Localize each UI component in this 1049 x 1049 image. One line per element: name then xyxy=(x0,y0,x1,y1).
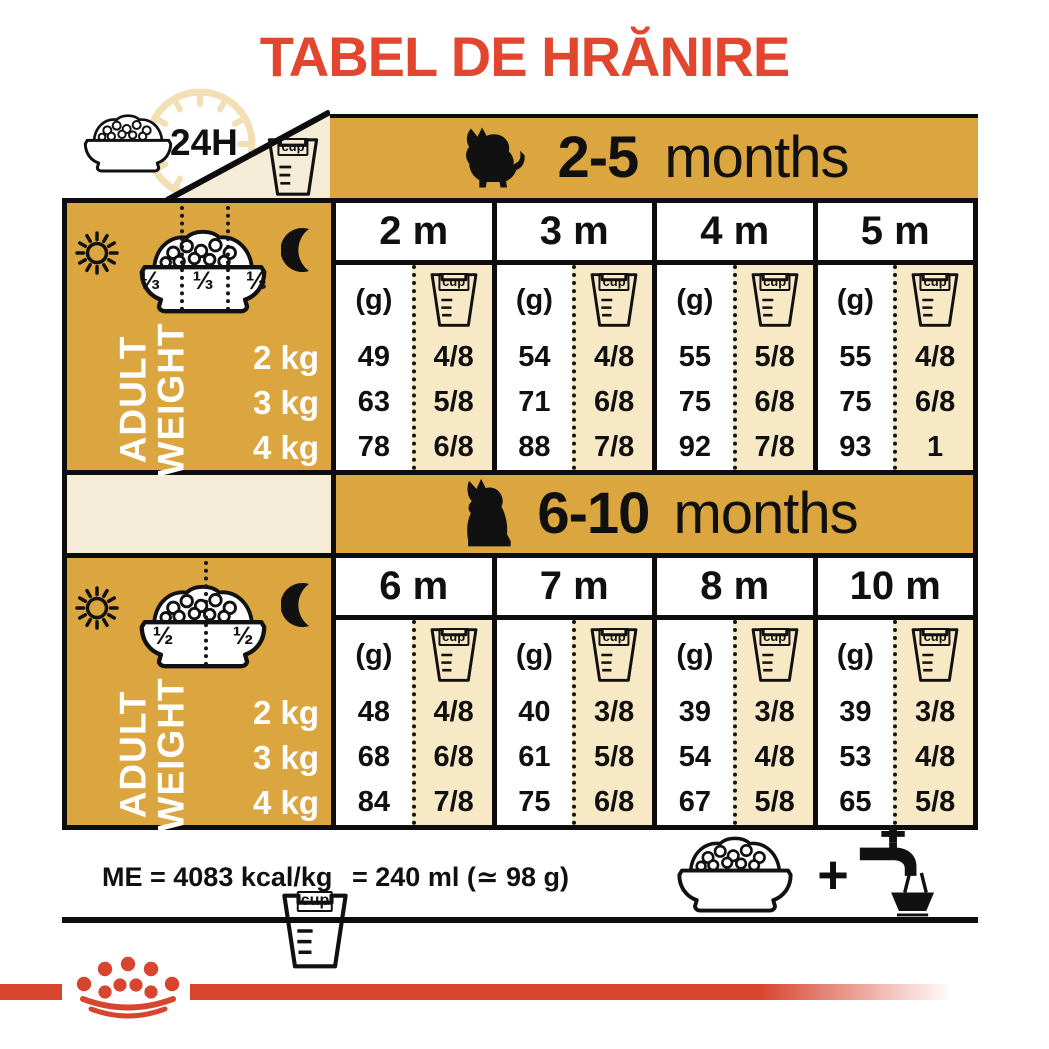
measuring-cup-icon: cup xyxy=(911,273,959,327)
grams-value: 75 xyxy=(657,380,733,425)
column-5m: 5 m (g) 55 75 93 cup 4/8 6/8 1 xyxy=(818,203,974,470)
cup-value: 3/8 xyxy=(576,690,652,735)
cups-subcolumn: cup 4/8 6/8 7/8 xyxy=(412,620,492,825)
fraction-label: ⅓ xyxy=(123,267,176,296)
age-band-content: 6-10 months xyxy=(336,475,973,553)
weight-label: 2 kg xyxy=(253,690,319,735)
cup-label: cup xyxy=(297,891,333,912)
fraction-label: ⅓ xyxy=(230,267,283,296)
measuring-cup-icon: cup xyxy=(430,628,478,682)
grams-value: 63 xyxy=(336,380,412,425)
grams-value: 71 xyxy=(497,380,573,425)
grams-value: 39 xyxy=(657,690,733,735)
grams-value: 61 xyxy=(497,735,573,780)
cup-value: 7/8 xyxy=(576,425,652,470)
red-stripe-right xyxy=(190,984,960,1000)
cup-value: 5/8 xyxy=(897,780,973,825)
weight-label: 3 kg xyxy=(253,380,319,425)
column-10m: 10 m (g) 39 53 65 cup 3/8 4/8 5/8 xyxy=(818,558,974,825)
cup-value: 6/8 xyxy=(416,735,492,780)
weight-label: 4 kg xyxy=(253,780,319,825)
cup-label: cup xyxy=(920,273,951,291)
cup-label: cup xyxy=(599,273,630,291)
measuring-cup-icon: cup xyxy=(266,138,320,196)
fraction-label: ⅓ xyxy=(176,267,229,296)
month-header: 5 m xyxy=(818,203,974,265)
puppy-sitting-icon xyxy=(451,477,513,551)
cups-subcolumn: cup 3/8 4/8 5/8 xyxy=(893,620,973,825)
grams-value: 54 xyxy=(657,735,733,780)
month-header: 6 m xyxy=(336,558,492,620)
measuring-cup-icon: cup xyxy=(751,273,799,327)
cup-value: 6/8 xyxy=(576,380,652,425)
grams-value: 53 xyxy=(818,735,894,780)
moon-icon xyxy=(281,582,315,628)
month-header: 3 m xyxy=(497,203,653,265)
cup-value: 5/8 xyxy=(737,780,813,825)
cup-value: 3/8 xyxy=(737,690,813,735)
cup-value: 6/8 xyxy=(576,780,652,825)
adult-weight-line2: WEIGHT xyxy=(153,322,191,476)
month-header: 8 m xyxy=(657,558,813,620)
moon-icon xyxy=(281,227,315,273)
adult-weight-heading: ADULT WEIGHT xyxy=(83,329,223,469)
grams-unit-label: (g) xyxy=(497,265,573,335)
grams-value: 78 xyxy=(336,425,412,470)
weight-label: 3 kg xyxy=(253,735,319,780)
grams-subcolumn: (g) 48 68 84 xyxy=(336,620,412,825)
grams-unit-label: (g) xyxy=(336,620,412,690)
adult-weight-line1: ADULT xyxy=(115,677,153,831)
metabolizable-energy-label: ME = 4083 kcal/kg xyxy=(102,862,332,893)
fraction-label: ½ xyxy=(203,622,283,651)
cups-subcolumn: cup 5/8 6/8 7/8 xyxy=(733,265,813,470)
adult-weight-line2: WEIGHT xyxy=(153,677,191,831)
month-header: 10 m xyxy=(818,558,974,620)
cup-value: 5/8 xyxy=(576,735,652,780)
plus-sign: + xyxy=(810,844,856,906)
cups-subcolumn: cup 4/8 5/8 6/8 xyxy=(412,265,492,470)
ration-fractions: ½ ½ xyxy=(123,622,283,651)
month-header: 4 m xyxy=(657,203,813,265)
portion-divider-line xyxy=(204,561,208,666)
weight-label: 4 kg xyxy=(253,425,319,470)
grams-value: 55 xyxy=(818,335,894,380)
band-spacer xyxy=(67,475,336,553)
grams-unit-label: (g) xyxy=(336,265,412,335)
portion-divider-line xyxy=(226,206,230,311)
footer-divider-line xyxy=(62,917,978,923)
grams-value: 55 xyxy=(657,335,733,380)
food-bowl-icon xyxy=(655,834,815,914)
age-range: 6-10 xyxy=(537,485,649,543)
weight-rows: 2 kg 3 kg 4 kg xyxy=(253,335,319,470)
cup-label: cup xyxy=(438,273,469,291)
grams-subcolumn: (g) 40 61 75 xyxy=(497,620,573,825)
red-stripe-left xyxy=(0,984,62,1000)
cup-value: 5/8 xyxy=(737,335,813,380)
grams-value: 84 xyxy=(336,780,412,825)
grams-subcolumn: (g) 55 75 93 xyxy=(818,265,894,470)
grams-value: 88 xyxy=(497,425,573,470)
grams-value: 75 xyxy=(818,380,894,425)
grams-value: 67 xyxy=(657,780,733,825)
measuring-cup-icon: cup xyxy=(911,628,959,682)
month-header: 7 m xyxy=(497,558,653,620)
grams-value: 92 xyxy=(657,425,733,470)
age-range: 2-5 xyxy=(557,129,638,187)
page-title: TABEL DE HRĂNIRE xyxy=(0,24,1049,89)
water-faucet-icon xyxy=(854,824,936,918)
portion-divider-line xyxy=(180,206,184,311)
cup-value: 4/8 xyxy=(737,735,813,780)
feeding-table-page: TABEL DE HRĂNIRE 24H cup 2-5 months ⅓ xyxy=(0,0,1049,1049)
grams-value: 68 xyxy=(336,735,412,780)
grams-value: 65 xyxy=(818,780,894,825)
cups-subcolumn: cup 4/8 6/8 1 xyxy=(893,265,973,470)
grams-value: 93 xyxy=(818,425,894,470)
measuring-cup-icon: cup xyxy=(590,273,638,327)
cup-value: 6/8 xyxy=(897,380,973,425)
month-columns: 2 m (g) 49 63 78 cup 4/8 5/8 6/8 xyxy=(336,203,973,470)
grams-unit-label: (g) xyxy=(657,265,733,335)
cup-label: cup xyxy=(759,628,790,646)
grams-subcolumn: (g) 55 75 92 xyxy=(657,265,733,470)
cup-value: 4/8 xyxy=(576,335,652,380)
grams-unit-label: (g) xyxy=(818,620,894,690)
grams-subcolumn: (g) 54 71 88 xyxy=(497,265,573,470)
grams-value: 39 xyxy=(818,690,894,735)
sun-icon xyxy=(73,229,121,277)
cups-subcolumn: cup 3/8 4/8 5/8 xyxy=(733,620,813,825)
cup-value: 4/8 xyxy=(897,735,973,780)
grams-subcolumn: (g) 49 63 78 xyxy=(336,265,412,470)
sidebar-2-5: ⅓ ⅓ ⅓ ADULT WEIGHT 2 kg 3 kg 4 kg xyxy=(67,203,336,470)
cup-value: 4/8 xyxy=(416,690,492,735)
cup-label: cup xyxy=(277,138,308,156)
table-6-10-months: ½ ½ ADULT WEIGHT 2 kg 3 kg 4 kg xyxy=(67,558,973,825)
cup-label: cup xyxy=(599,628,630,646)
cup-value: 1 xyxy=(897,425,973,470)
grams-value: 54 xyxy=(497,335,573,380)
cup-label: cup xyxy=(759,273,790,291)
age-band-2-5-months: 2-5 months xyxy=(330,114,978,198)
cup-label: cup xyxy=(438,628,469,646)
cup-value: 3/8 xyxy=(897,690,973,735)
puppy-standing-icon xyxy=(459,125,531,191)
grams-subcolumn: (g) 39 53 65 xyxy=(818,620,894,825)
column-2m: 2 m (g) 49 63 78 cup 4/8 5/8 6/8 xyxy=(336,203,497,470)
cup-value: 4/8 xyxy=(897,335,973,380)
weight-rows: 2 kg 3 kg 4 kg xyxy=(253,690,319,825)
column-7m: 7 m (g) 40 61 75 cup 3/8 5/8 6/8 xyxy=(497,558,658,825)
weight-label: 2 kg xyxy=(253,335,319,380)
grams-value: 48 xyxy=(336,690,412,735)
measuring-cup-icon: cup xyxy=(282,891,348,971)
feeding-board: ⅓ ⅓ ⅓ ADULT WEIGHT 2 kg 3 kg 4 kg xyxy=(62,198,978,830)
cup-value: 7/8 xyxy=(737,425,813,470)
cup-equivalence-label: = 240 ml (≃ 98 g) xyxy=(352,862,569,893)
month-columns: 6 m (g) 48 68 84 cup 4/8 6/8 7/8 xyxy=(336,558,973,825)
sun-icon xyxy=(73,584,121,632)
measuring-cup-icon: cup xyxy=(751,628,799,682)
month-header: 2 m xyxy=(336,203,492,265)
grams-value: 75 xyxy=(497,780,573,825)
fraction-label: ½ xyxy=(123,622,203,651)
cup-value: 6/8 xyxy=(416,425,492,470)
column-3m: 3 m (g) 54 71 88 cup 4/8 6/8 7/8 xyxy=(497,203,658,470)
royal-canin-crown-logo xyxy=(70,956,186,1020)
measuring-cup-icon: cup xyxy=(590,628,638,682)
cups-subcolumn: cup 3/8 5/8 6/8 xyxy=(572,620,652,825)
cup-value: 7/8 xyxy=(416,780,492,825)
ration-fractions: ⅓ ⅓ ⅓ xyxy=(123,267,283,296)
table-2-5-months: ⅓ ⅓ ⅓ ADULT WEIGHT 2 kg 3 kg 4 kg xyxy=(67,203,973,470)
grams-unit-label: (g) xyxy=(818,265,894,335)
cup-value: 4/8 xyxy=(416,335,492,380)
grams-value: 40 xyxy=(497,690,573,735)
grams-unit-label: (g) xyxy=(497,620,573,690)
grams-subcolumn: (g) 39 54 67 xyxy=(657,620,733,825)
grams-unit-label: (g) xyxy=(657,620,733,690)
column-4m: 4 m (g) 55 75 92 cup 5/8 6/8 7/8 xyxy=(657,203,818,470)
column-8m: 8 m (g) 39 54 67 cup 3/8 4/8 5/8 xyxy=(657,558,818,825)
age-unit: months xyxy=(673,485,857,543)
cup-value: 5/8 xyxy=(416,380,492,425)
adult-weight-heading: ADULT WEIGHT xyxy=(83,684,223,824)
cup-value: 6/8 xyxy=(737,380,813,425)
age-unit: months xyxy=(664,129,848,187)
cups-subcolumn: cup 4/8 6/8 7/8 xyxy=(572,265,652,470)
age-band-6-10-months: 6-10 months xyxy=(67,470,973,558)
cup-label: cup xyxy=(920,628,951,646)
adult-weight-line1: ADULT xyxy=(115,322,153,476)
column-6m: 6 m (g) 48 68 84 cup 4/8 6/8 7/8 xyxy=(336,558,497,825)
measuring-cup-icon: cup xyxy=(430,273,478,327)
sidebar-6-10: ½ ½ ADULT WEIGHT 2 kg 3 kg 4 kg xyxy=(67,558,336,825)
grams-value: 49 xyxy=(336,335,412,380)
